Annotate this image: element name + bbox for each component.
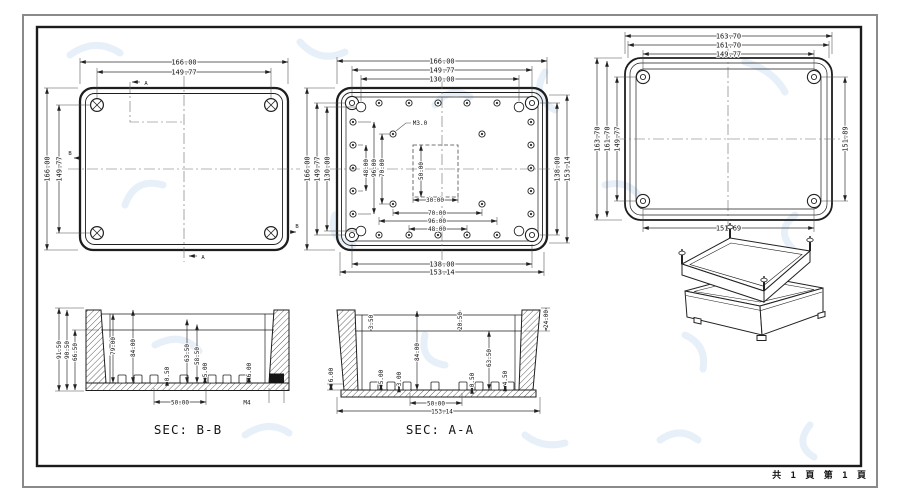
- dim-label: 149.77: [716, 50, 741, 58]
- dim-label: 151.89: [841, 126, 849, 151]
- dim-label: 50.00: [171, 399, 189, 406]
- dim-label: 90.50: [64, 341, 71, 359]
- dim-label: 153.14: [563, 156, 571, 181]
- dim-label: 163.70: [593, 126, 601, 151]
- dim-label: 149.77: [313, 156, 321, 181]
- dim-label: 48.00: [363, 159, 370, 177]
- dim-label: 84.00: [130, 339, 137, 357]
- dim-label: 138.00: [429, 260, 454, 268]
- dim-label: 130.00: [429, 75, 454, 83]
- dim-label: 20.50: [457, 312, 464, 330]
- dim-label: 5.00: [378, 369, 385, 384]
- dim-label: 63.50: [486, 349, 493, 367]
- dim-label: 166.00: [43, 156, 51, 181]
- dim-label: 79.00: [110, 337, 117, 355]
- dim-label: 166.00: [303, 156, 311, 181]
- dim-label: 50.00: [418, 162, 425, 180]
- section-title: SEC: A-A: [406, 422, 474, 437]
- drawing-sheet: A A B B 166.00 149.77 166.00 149.77: [0, 0, 900, 500]
- dim-label: 5.00: [202, 362, 209, 377]
- dim-label: 161.70: [603, 126, 611, 151]
- m4-insert: [269, 374, 284, 384]
- dim-label: 153.14: [431, 408, 453, 415]
- dim-label: 0.50: [164, 366, 171, 381]
- section-title: SEC: B-B: [154, 422, 222, 437]
- dim-label: 166.00: [429, 57, 454, 65]
- dim-label: 96.00: [428, 218, 446, 225]
- dim-label: 91.50: [56, 341, 63, 359]
- dim-label: 84.00: [414, 343, 421, 361]
- dim-label: 149.77: [429, 66, 454, 74]
- dim-label: 6.00: [246, 362, 253, 377]
- dim-label: 66.50: [72, 343, 79, 361]
- dim-label: 58.50: [194, 347, 201, 365]
- dim-label: 70.00: [428, 210, 446, 217]
- thread-callout: M3.0: [413, 120, 428, 127]
- dim-label: 130.00: [323, 156, 331, 181]
- dim-label: 6.00: [328, 367, 335, 382]
- dim-label: 4.50: [502, 370, 509, 385]
- dim-label: 0.50: [469, 372, 476, 387]
- dim-label: 48.00: [428, 226, 446, 233]
- dim-label: 149.77: [55, 156, 63, 181]
- dim-label: 153.14: [429, 268, 454, 276]
- dim-label: 3.50: [368, 314, 375, 329]
- page-count: 共 1 頁 第 1 頁: [772, 469, 868, 481]
- dim-label: 24.00: [543, 310, 550, 328]
- dim-label: 166.00: [171, 58, 196, 66]
- dim-label: 149.77: [171, 68, 196, 76]
- thread-callout: M4: [243, 400, 251, 407]
- dim-label: 149.77: [613, 126, 621, 151]
- dim-label: 3.00: [396, 371, 403, 386]
- dim-label: 30.00: [426, 197, 444, 204]
- dim-label: 50.00: [427, 400, 445, 407]
- dim-label: 63.50: [184, 344, 191, 362]
- dim-label: 70.00: [379, 159, 386, 177]
- dim-label: 163.70: [716, 32, 741, 40]
- dim-label: 96.00: [371, 159, 378, 177]
- cad-drawing: A A B B 166.00 149.77 166.00 149.77: [0, 0, 900, 500]
- dim-label: 161.70: [716, 41, 741, 49]
- dim-label: 138.00: [553, 156, 561, 181]
